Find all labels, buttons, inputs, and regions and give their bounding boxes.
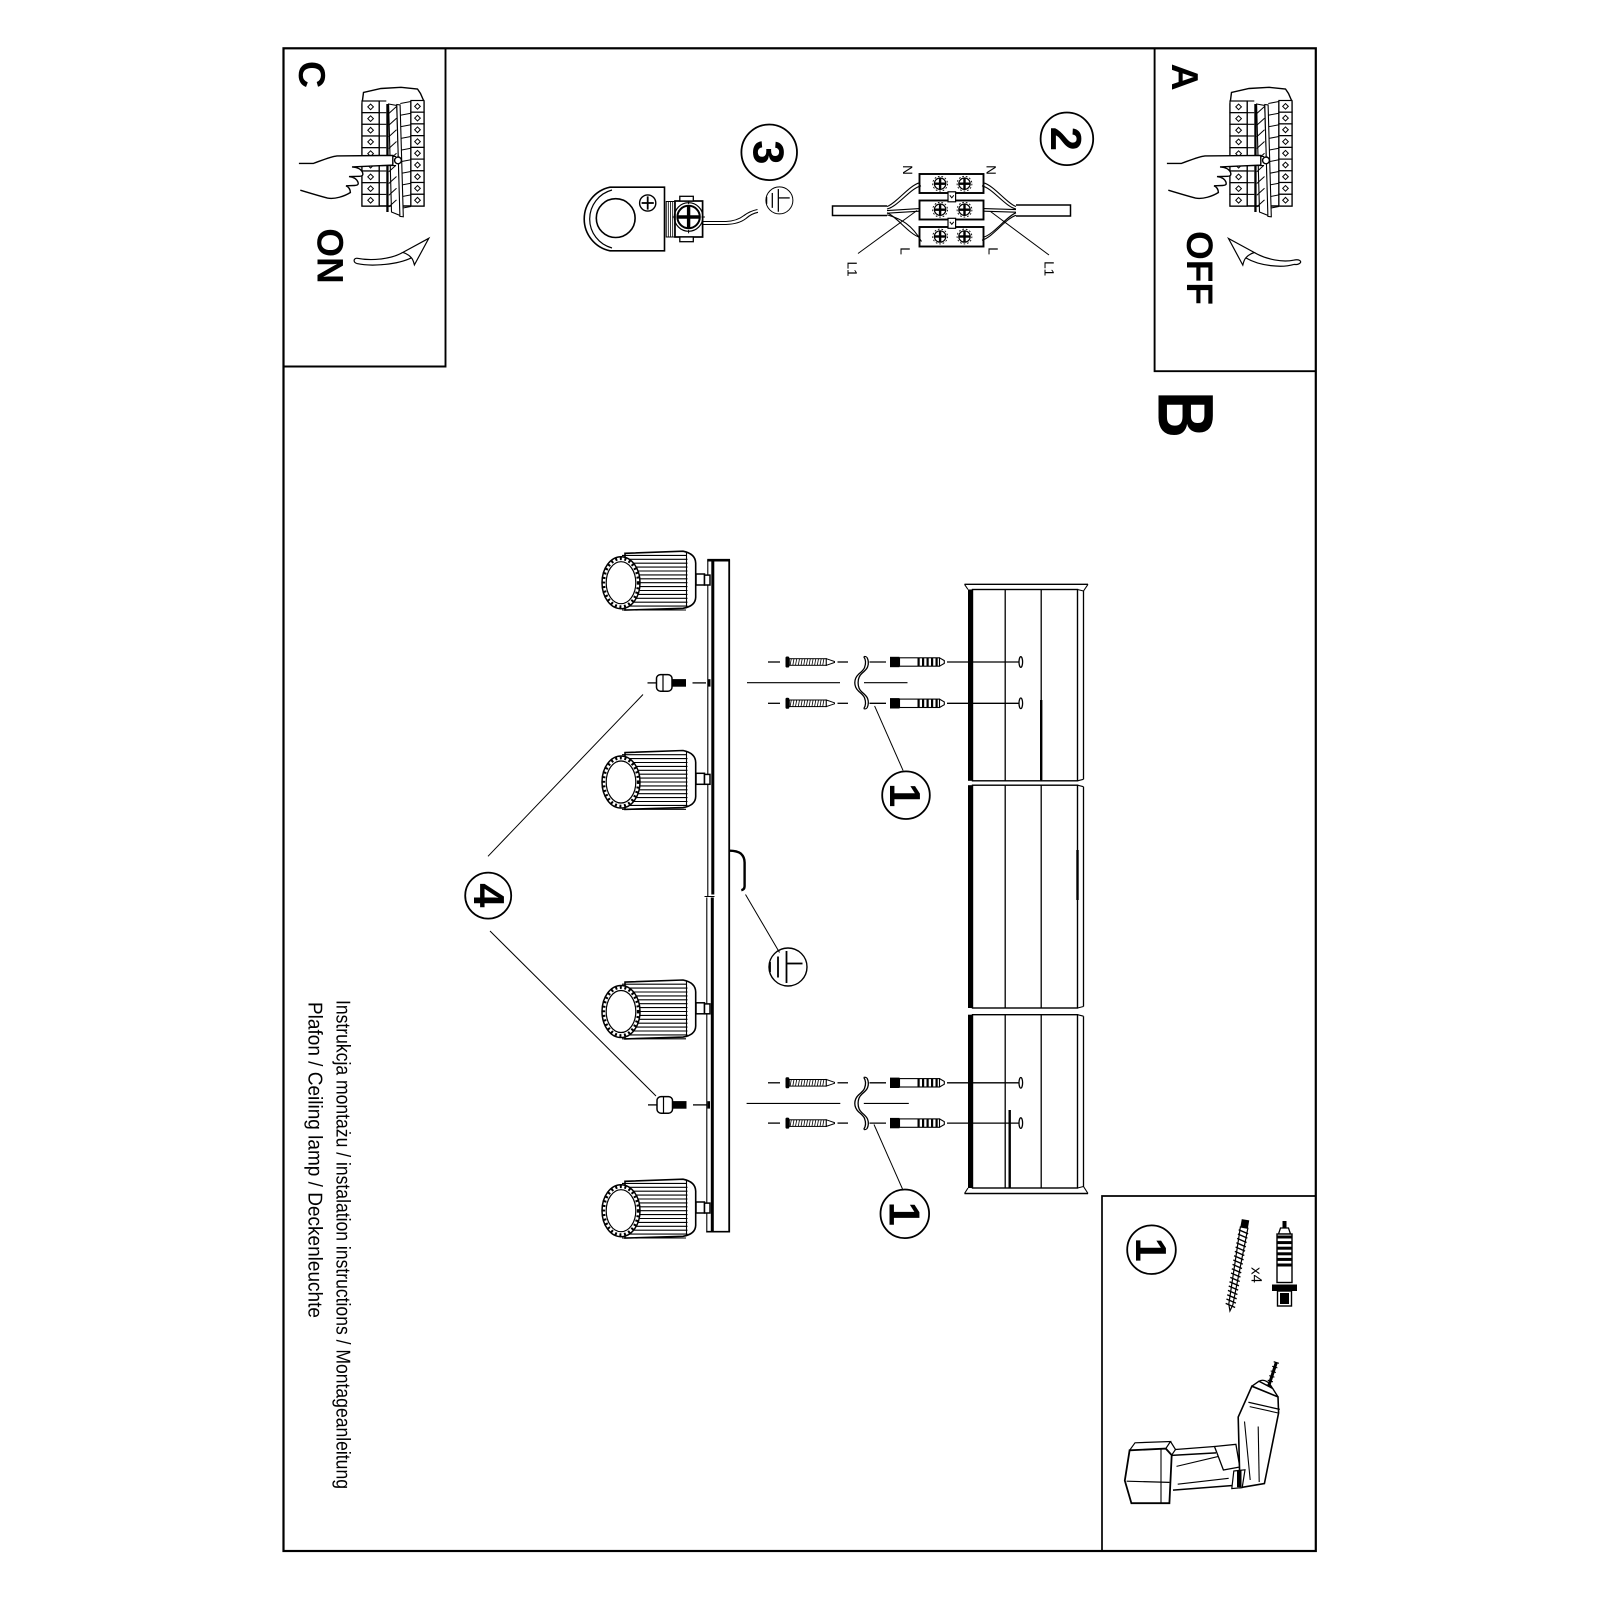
svg-text:4: 4 — [464, 883, 512, 907]
svg-text:1: 1 — [880, 783, 928, 807]
svg-text:L1: L1 — [845, 261, 860, 276]
svg-text:2: 2 — [1041, 127, 1089, 151]
svg-text:x4: x4 — [1248, 1267, 1265, 1283]
svg-text:N: N — [900, 165, 915, 175]
svg-text:Plafon / Ceiling lamp / Decken: Plafon / Ceiling lamp / Deckenleuchte — [304, 1002, 326, 1318]
svg-text:B: B — [1142, 391, 1231, 438]
svg-text:L1: L1 — [1042, 261, 1057, 276]
svg-text:Instrukcja montażu / instalati: Instrukcja montażu / instalation instruc… — [332, 1000, 354, 1489]
svg-text:L: L — [986, 247, 1001, 255]
svg-text:A: A — [1164, 63, 1206, 90]
svg-text:1: 1 — [1126, 1238, 1174, 1262]
svg-text:N: N — [984, 165, 999, 175]
svg-text:C: C — [291, 61, 333, 88]
svg-text:3: 3 — [744, 140, 792, 164]
svg-text:L: L — [898, 247, 913, 255]
svg-text:ON: ON — [310, 228, 351, 284]
svg-text:OFF: OFF — [1179, 231, 1220, 305]
svg-text:1: 1 — [879, 1202, 927, 1226]
